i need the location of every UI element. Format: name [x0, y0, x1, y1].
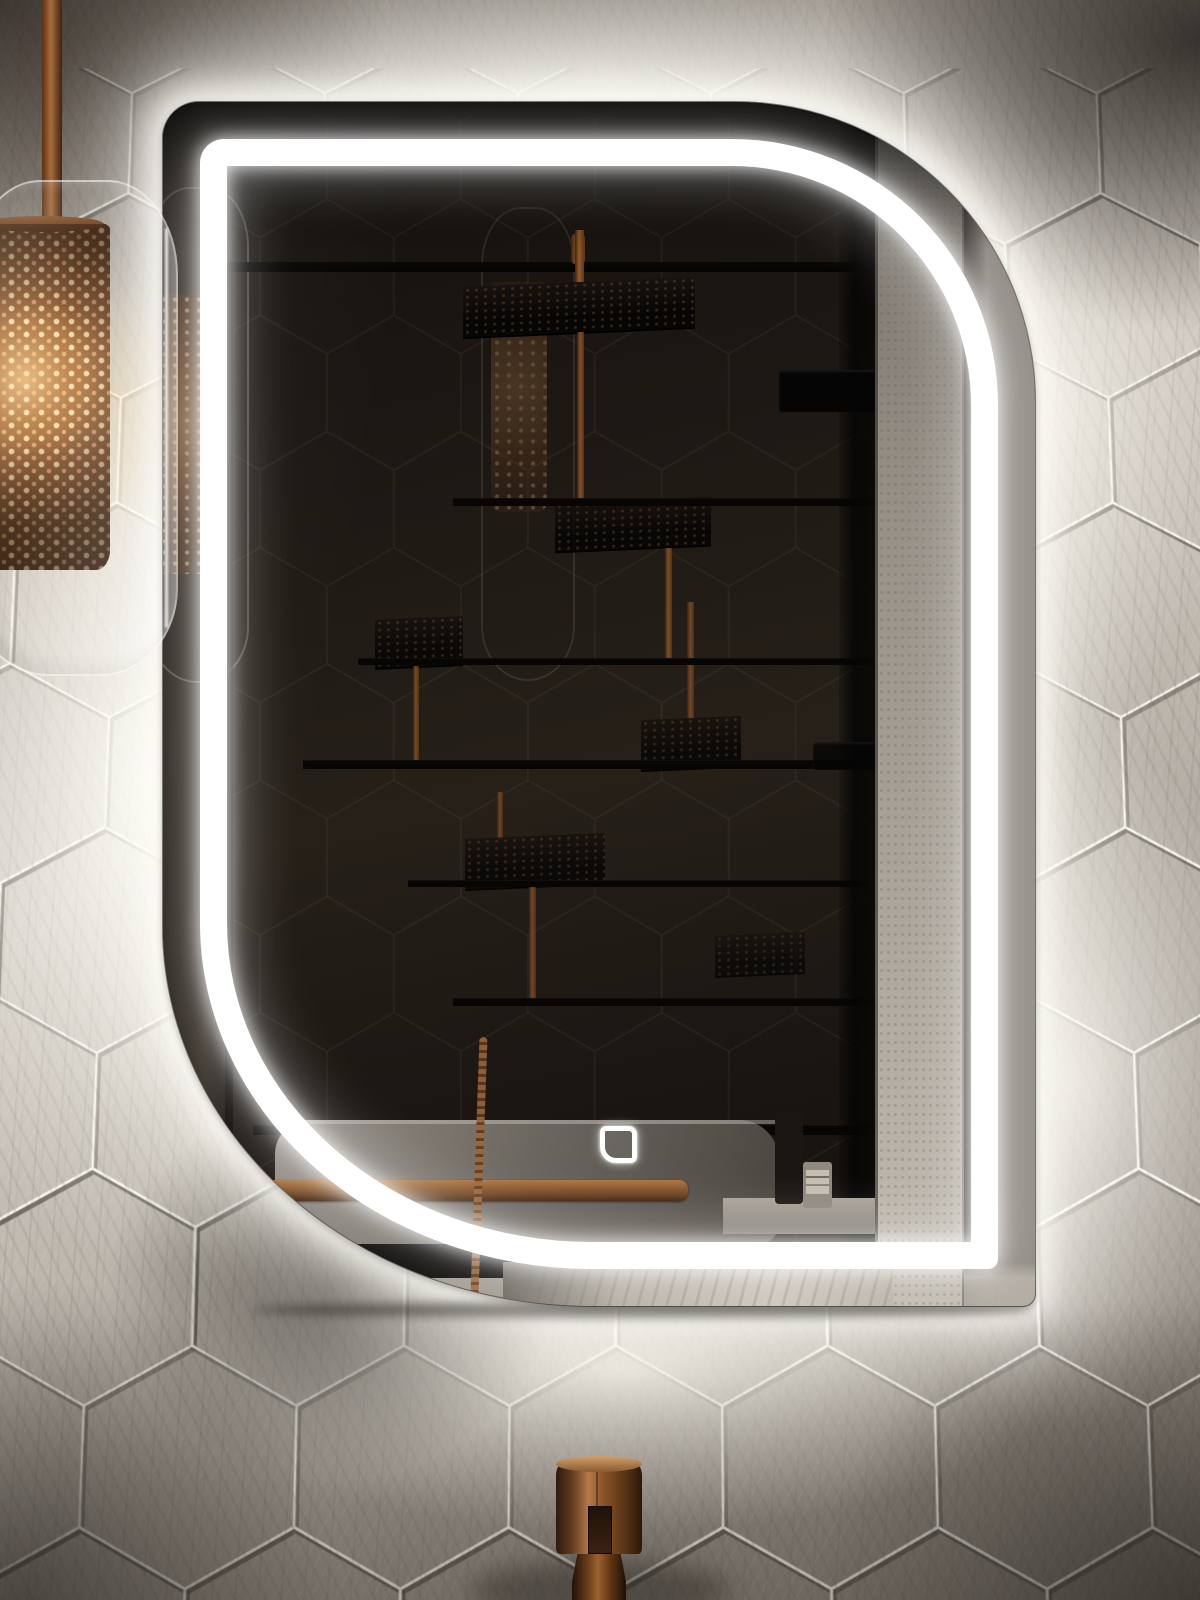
faucet-front-notch	[588, 1506, 612, 1554]
faucet-stem	[572, 1554, 626, 1600]
faucet-head-cylinder	[556, 1462, 642, 1554]
bathroom-photo	[0, 0, 1200, 1600]
lamp-glass-cylinder	[0, 180, 178, 676]
pendant-lamp	[0, 0, 260, 700]
copper-faucet	[556, 1462, 642, 1600]
glass-highlight	[165, 228, 168, 628]
led-backlit-mirror	[163, 102, 1035, 1306]
led-light-ring	[200, 139, 998, 1269]
faucet-top-cap	[556, 1456, 642, 1472]
touch-sensor-icon	[600, 1126, 637, 1163]
